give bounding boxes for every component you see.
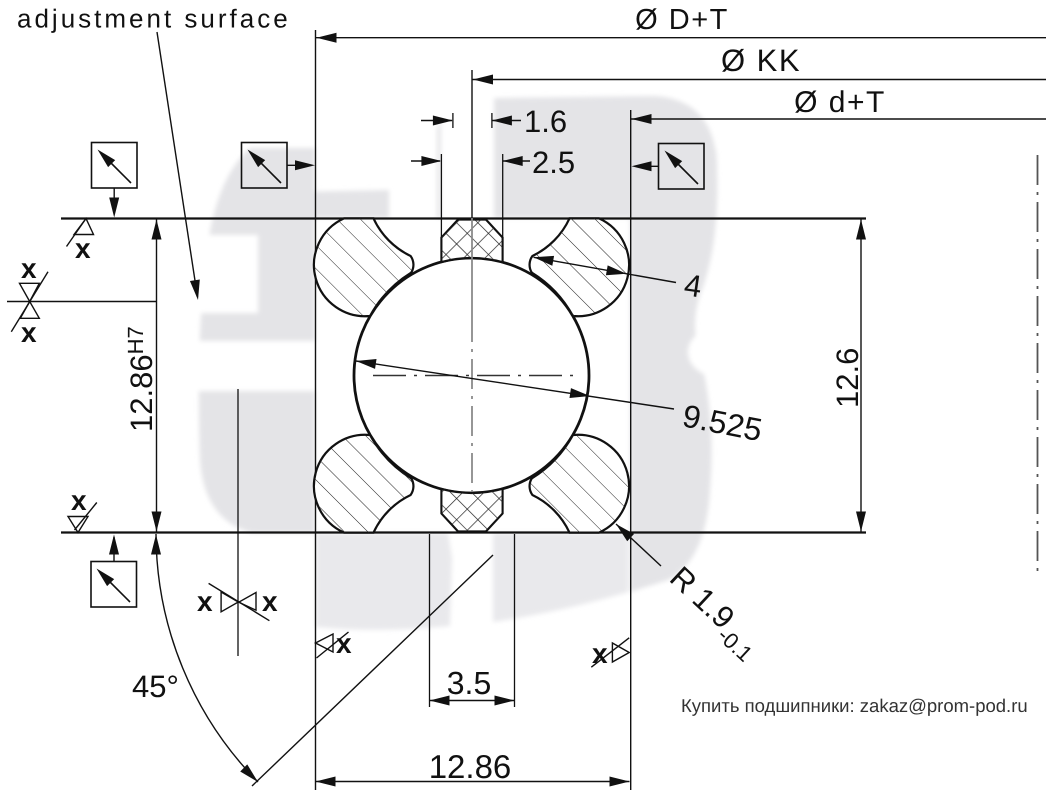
svg-text:x: x [197, 586, 213, 617]
svg-text:12.86: 12.86 [429, 748, 512, 785]
svg-text:x: x [262, 586, 278, 617]
svg-text:1.6: 1.6 [524, 104, 567, 139]
svg-text:Купить подшипники: zakaz@prom-: Купить подшипники: zakaz@prom-pod.ru [681, 695, 1028, 716]
svg-text:Ø d+T: Ø d+T [794, 86, 886, 119]
svg-text:x: x [21, 253, 37, 284]
svg-text:x: x [21, 317, 37, 348]
svg-text:x: x [592, 638, 608, 669]
svg-text:x: x [336, 628, 352, 659]
svg-text:x: x [75, 233, 91, 264]
svg-text:x: x [71, 485, 87, 516]
svg-text:Ø D+T: Ø D+T [635, 4, 729, 36]
svg-text:12.6: 12.6 [830, 348, 865, 408]
svg-text:adjustment surface: adjustment surface [17, 4, 291, 34]
svg-text:Ø KK: Ø KK [721, 43, 801, 78]
svg-text:3.5: 3.5 [447, 665, 491, 701]
svg-text:45°: 45° [132, 669, 179, 704]
svg-text:2.5: 2.5 [532, 145, 575, 180]
